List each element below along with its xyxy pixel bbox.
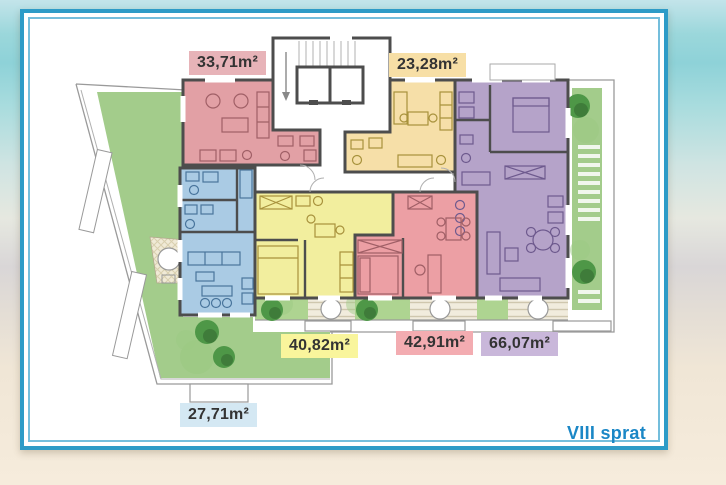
area-label-66-07: 66,07m²	[481, 332, 558, 356]
area-label-23-28: 23,28m²	[389, 53, 466, 77]
roof-outline	[490, 64, 555, 80]
area-label-42-91: 42,91m²	[396, 331, 473, 355]
area-label-40-82: 40,82m²	[281, 334, 358, 358]
floor-plan-svg	[0, 0, 726, 485]
area-label-27-71: 27,71m²	[180, 403, 257, 427]
beach-background: 33,71m² 23,28m² 40,82m² 42,91m² 66,07m² …	[0, 0, 726, 485]
floor-label: VIII sprat	[567, 423, 646, 444]
elevator	[297, 67, 363, 105]
area-label-33-71: 33,71m²	[189, 51, 266, 75]
